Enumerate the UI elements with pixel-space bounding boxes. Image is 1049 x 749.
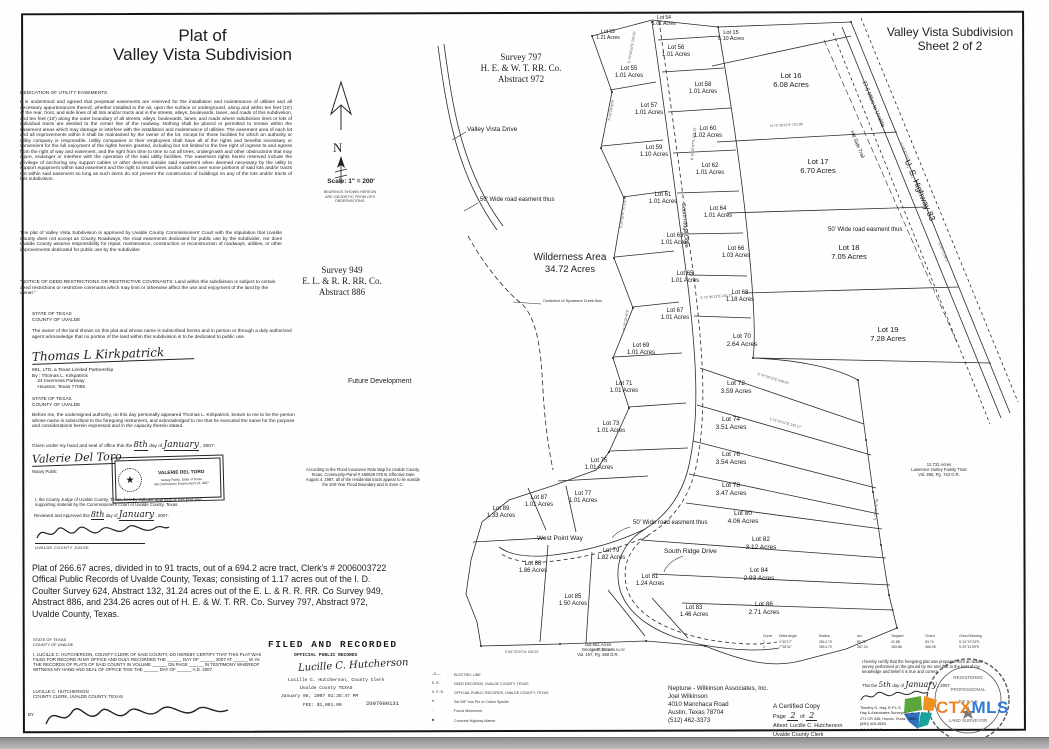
lot-acreage: 3.54 Acres <box>716 459 747 467</box>
lot-label: Lot 641.01 Acres <box>704 206 732 220</box>
road-label: West Point Way <box>537 535 583 542</box>
curve-table-cell: 367.24 <box>857 645 891 651</box>
firm-info-line: (512) 462-3373 <box>668 717 768 725</box>
lot-label: Lot 621.01 Acres <box>696 163 724 177</box>
lot-acreage: 2.71 Acres <box>749 609 780 617</box>
survey-797-line2: H. E. & W. T. RR. Co. <box>473 63 569 74</box>
lot-acreage: 1.10 Acres <box>640 152 668 159</box>
county-of-uvalde-label: COUNTY OF UVALDE <box>33 643 73 648</box>
lot-label: Lot 791.82 Acres <box>597 548 625 562</box>
lot-acreage: 3.59 Acres <box>721 388 752 396</box>
lot-number: Lot 74 <box>716 416 747 424</box>
lot-label: Lot 571.01 Acres <box>635 103 663 117</box>
lot-label: Lot 811.24 Acres <box>636 574 664 588</box>
lot-number: Lot 70 <box>727 333 758 341</box>
lot-label: Lot 176.70 Acres <box>800 158 835 176</box>
clerk-title: COUNTY CLERK, UVALDE COUNTY, TEXAS <box>33 694 123 699</box>
survey-949-line3: Abstract 886 <box>294 287 390 298</box>
lot-number: Lot 86 <box>749 601 780 609</box>
legend-label: ELECTRIC LINE <box>454 673 481 677</box>
given-suffix: , 2007. <box>200 444 215 449</box>
north-arrow-icon: N <box>331 82 351 184</box>
plat-title: Plat of Valley Vista Subdivision <box>100 26 305 64</box>
wilderness-line2: 34.72 Acres <box>518 264 622 276</box>
state-county-block-1: STATE OF TEXAS COUNTY OF UVALDE <box>32 312 80 323</box>
lot-label: Lot 561.01 Acres <box>662 45 690 59</box>
lot-acreage: 1.01 Acres <box>696 170 724 177</box>
lot-acreage: 4.06 Acres <box>728 518 759 526</box>
legend-symbol: D.R. <box>432 682 454 686</box>
owner-company: 691, LTD, a Texas Limited Partnership <box>32 368 113 373</box>
wilderness-area-label: Wilderness Area 34.72 Acres <box>518 252 622 276</box>
surveyor-info-line: Job # 6104-0 <box>860 728 917 733</box>
road-label: Valley Vista Drive <box>467 126 517 133</box>
plat-title-line1: Plat of <box>100 26 305 45</box>
bearings-note: BEARINGS SHOWN HEREON ARE GEODETIC FROM … <box>312 190 388 204</box>
filed-instrument-number: 2007000131 <box>366 700 399 707</box>
lot-number: Lot 66 <box>722 246 750 253</box>
firm-info-line: Austin, Texas 78704 <box>668 709 768 717</box>
lot-number: Lot 55 <box>615 66 643 73</box>
plat-summary-paragraph: Plat of 266.67 acres, divided in to 91 t… <box>32 563 388 620</box>
lot-number: Lot 57 <box>635 103 663 110</box>
lot-label: Lot 155.10 Acres <box>718 30 744 43</box>
lot-acreage: 3.12 Acres <box>746 544 777 552</box>
lot-number: Lot 56 <box>662 45 690 52</box>
page-label: Page <box>773 714 786 720</box>
legend-label: DEED RECORDS, UVALDE COUNTY, TEXAS <box>454 682 529 686</box>
curve-table: CurveDelta AngleRadiusArcTangentChordCho… <box>763 634 1011 651</box>
legend-item: ◦Found Monument <box>432 707 549 716</box>
lot-acreage: 1.01 Acres <box>525 502 553 509</box>
lot-acreage: 1.03 Acres <box>722 253 750 260</box>
lot-acreage: 1.01 Acres <box>615 73 643 80</box>
us-highway-83-road <box>842 22 1010 418</box>
legend-symbol: O.P.R. <box>432 691 454 695</box>
notary-stamp: ★ VALERIE DEL TORO Notary Public, State … <box>114 458 221 501</box>
surveyor-date-prefix: This the <box>862 683 877 688</box>
lot-acreage: 7.05 Acres <box>831 253 866 262</box>
notary-given-line: Given under my hand and seal of office t… <box>32 440 215 450</box>
given-month-handwritten: January <box>164 440 199 451</box>
lot-label: Lot 531.21 Acres <box>596 30 620 42</box>
survey-797-line3: Abstract 972 <box>473 74 569 85</box>
clerk-by-label: BY <box>28 712 34 717</box>
lot-number: Lot 85 <box>559 594 587 601</box>
surveyor-date-line: This the 5th day of January , 2007. <box>862 680 951 689</box>
surveyor-firm-block: Neptune - Wilkinson Associates, Inc.Joel… <box>668 685 768 725</box>
lot-label: Lot 651.01 Acres <box>671 271 699 285</box>
hurley-tract-label: 12.731 Acres Lawrence Hurley Family Trus… <box>893 462 985 478</box>
lot-acreage: 1.01 Acres <box>649 199 677 206</box>
lot-number: Lot 81 <box>636 574 664 581</box>
lot-number: Lot 75 <box>585 458 613 465</box>
lot-acreage: 1.18 Acres <box>726 297 754 304</box>
legend-item: ●Set 5/8" Iron Pin or Cotton Spindle <box>432 698 549 707</box>
curve-table-cell: 366.98 <box>925 645 959 651</box>
lot-number: Lot 73 <box>597 421 625 428</box>
deed-restrictions-notice: "NOTICE OF DEED RESTRICTIONS OR RESTRICT… <box>20 280 278 297</box>
survey-797-block: Survey 797 H. E. & W. T. RR. Co. Abstrac… <box>473 52 569 85</box>
reviewed-suffix: , 2007. <box>155 513 168 518</box>
reviewed-month-handwritten: January <box>119 510 154 521</box>
lot-acreage: 1.01 Acres <box>627 350 655 357</box>
lot-label: Lot 541.01 Acres <box>652 16 676 28</box>
lot-number: Lot 67 <box>661 308 689 315</box>
bearing-distance-label: N 86°36'53"E 184.59' <box>592 648 625 652</box>
map-legend: —E——ELECTRIC LINED.R.DEED RECORDS, UVALD… <box>432 670 549 725</box>
legend-item: ■Concrete Highway Marker <box>432 716 549 725</box>
lot-label: Lot 166.08 Acres <box>773 72 808 90</box>
firm-info-line: Joel Wilkinson <box>668 693 768 701</box>
lot-label: Lot 591.10 Acres <box>640 145 668 159</box>
seal-word-registered: REGISTERED <box>953 675 983 680</box>
ctx-logo-text: CTX <box>936 698 972 717</box>
lot-acreage: 7.28 Acres <box>870 335 905 344</box>
survey-797-line1: Survey 797 <box>473 52 569 63</box>
surveyor-certification-body: I hereby certify that the foregoing plat… <box>862 659 992 675</box>
lot-acreage: 1.33 Acres <box>487 513 515 520</box>
lot-acreage: 3.47 Acres <box>716 490 747 498</box>
lot-label: Lot 723.59 Acres <box>721 380 752 395</box>
curve-table-cell: 2814.79 <box>819 645 857 651</box>
lot-label: Lot 611.01 Acres <box>649 192 677 206</box>
county-of-uvalde-label: COUNTY OF UVALDE <box>32 403 80 409</box>
lot-acreage: 6.70 Acres <box>800 167 835 176</box>
sheet-title-line1: Valley Vista Subdivision <box>880 25 1020 39</box>
lot-label: Lot 881.86 Acres <box>519 561 547 575</box>
filed-clerk-line: Lucille C. Hutcherson, County Clerk <box>288 678 385 683</box>
certified-copy-line1: A Certified Copy <box>773 702 842 711</box>
lot-number: Lot 62 <box>696 163 724 170</box>
filed-datetime: January 08, 2007 01:35:47 PM <box>281 694 358 699</box>
lot-label: Lot 671.01 Acres <box>661 308 689 322</box>
official-public-records-label: OFFICIAL PUBLIC RECORDS <box>294 653 357 658</box>
lot-label: Lot 187.05 Acres <box>831 244 866 262</box>
lot-number: Lot 88 <box>519 561 547 568</box>
legend-label: Found Monument <box>454 709 482 713</box>
scale-label: Scale: 1" = 200' <box>316 178 386 185</box>
owner-by-line: By : Thomas L. Kirkpatrick <box>32 374 88 379</box>
lot-acreage: 1.01 Acres <box>671 278 699 285</box>
lot-number: Lot 69 <box>627 343 655 350</box>
lot-label: Lot 771.01 Acres <box>569 491 597 505</box>
owner-acknowledgement-body: The owner of the land shown on this plat… <box>32 329 294 340</box>
flood-insurance-note: According to the Flood Insurance Rate Ma… <box>297 467 429 487</box>
curve-table-cell: 7°28'31" <box>779 645 819 651</box>
curve-table-cell: S 20°11'59"E <box>959 645 1011 651</box>
lot-number: Lot 79 <box>597 548 625 555</box>
lot-acreage: 1.01 Acres <box>635 110 663 117</box>
lot-label: Lot 823.12 Acres <box>746 536 777 551</box>
lot-label: Lot 842.93 Acres <box>744 567 775 582</box>
sheet-title-line2: Sheet 2 of 2 <box>880 39 1020 53</box>
lot-label: Lot 831.46 Acres <box>680 605 708 619</box>
notary-acknowledgement-body: Before me, the undersigned authority, on… <box>32 413 300 430</box>
lot-number: Lot 78 <box>716 482 747 490</box>
lot-label: Lot 804.06 Acres <box>728 510 759 525</box>
county-judge-approval-body: I, the County Judge of Uvalde County, Te… <box>35 497 220 507</box>
county-clerk-signature <box>46 707 228 724</box>
lot-number: Lot 61 <box>649 192 677 199</box>
legend-item: O.P.R.OFFICIAL PUBLIC RECORDS, UVALDE CO… <box>432 688 549 697</box>
reviewed-mid: day of <box>106 513 118 518</box>
lot-label: Lot 731.01 Acres <box>597 421 625 435</box>
survey-949-block: Survey 949 E. L. & R. R. RR. Co. Abstrac… <box>294 265 390 298</box>
page-num-handwritten: 2 <box>787 711 798 721</box>
road-label: 50' Wide road easment thus <box>828 227 903 233</box>
lot-acreage: 1.01 Acres <box>662 52 690 59</box>
lot-acreage: 1.86 Acres <box>519 568 547 575</box>
certified-attest-line: Attest: Lucille C. Hutcherson <box>773 722 842 731</box>
lot-number: Lot 71 <box>610 381 638 388</box>
lot-label: Lot 851.50 Acres <box>559 594 587 608</box>
road-label: South Ridge Drive <box>664 548 717 555</box>
lot-acreage: 1.01 Acres <box>704 213 732 220</box>
lot-label: Lot 891.33 Acres <box>487 506 515 520</box>
owner-address2: Houston, Texas 77055 <box>32 385 85 390</box>
legend-symbol: ◦ <box>432 709 454 713</box>
given-prefix: Given under my hand and seal of office t… <box>32 444 132 449</box>
ctxmls-logo: CTXMLS <box>936 698 1009 718</box>
certified-copy-block: A Certified Copy Page 2 of 2 Attest: Luc… <box>773 702 842 740</box>
surveyor-date-mid: day of <box>892 683 904 688</box>
lot-label: Lot 871.01 Acres <box>525 495 553 509</box>
page-total-handwritten: 2 <box>806 711 817 721</box>
surveyor-date-suffix: , 2007. <box>938 683 951 688</box>
dedication-heading: DEDICATION OF UTILITY EASEMENTS <box>20 91 107 96</box>
lot-acreage: 2.64 Acres <box>727 341 758 349</box>
reviewed-prefix: Reviewed and Approved this <box>34 513 90 518</box>
lot-column-east-edge <box>718 27 754 358</box>
lot-label: Lot 702.64 Acres <box>727 333 758 348</box>
county-judge-signature <box>37 526 169 538</box>
mls-logo-text: MLS <box>972 698 1009 717</box>
county-approval-body: The plat of Valley Vista Subdivision is … <box>20 231 282 253</box>
scanned-plat-document: N REGISTERED PROFESSIONAL T E X A S LAND… <box>0 0 1049 749</box>
subdivision-east-boundary <box>753 358 897 628</box>
seal-word-land-surveyor: LAND SURVEYOR <box>949 718 988 723</box>
county-of-uvalde-label: COUNTY OF UVALDE <box>32 318 80 324</box>
lot-number: Lot 58 <box>689 82 717 89</box>
notary-stamp-line3: My Commission Expires April 13, 2007 <box>145 481 218 487</box>
legend-item: —E——ELECTRIC LINE <box>432 670 549 679</box>
curve-table-cell: 183.88 <box>891 645 925 651</box>
lot-number: Lot 83 <box>680 605 708 612</box>
surveyor-info-block: Timothy G. Hay, R.P.L.S.Hay & Associates… <box>860 706 917 733</box>
lot-number: Lot 87 <box>525 495 553 502</box>
legend-symbol: ■ <box>432 719 454 723</box>
future-development-label: Future Development <box>348 378 411 385</box>
lot-number: Lot 80 <box>728 510 759 518</box>
lot-label: Lot 601.02 Acres <box>694 126 722 140</box>
lot-acreage: 1.01 Acres <box>569 498 597 505</box>
lot-label: Lot 711.01 Acres <box>610 381 638 395</box>
lot-number: Lot 76 <box>716 451 747 459</box>
of-label: of <box>800 714 805 720</box>
firm-info-line: Neptune - Wilkinson Associates, Inc. <box>668 685 768 693</box>
lot-number: Lot 72 <box>721 380 752 388</box>
filed-county-line: Uvalde County TEXAS <box>300 686 352 691</box>
firm-info-line: 4010 Manchaca Road <box>668 701 768 709</box>
lot-acreage: 1.01 Acres <box>661 315 689 322</box>
legend-label: Concrete Highway Marker <box>454 719 496 723</box>
state-county-block-3: STATE OF TEXAS COUNTY OF UVALDE <box>33 638 73 647</box>
dedication-body: It is understood and agreed that perpetu… <box>20 100 292 183</box>
lot-label: Lot 197.28 Acres <box>870 326 905 344</box>
filed-recorded-title: FILED AND RECORDED <box>268 639 398 650</box>
seal-word-professional: PROFESSIONAL <box>950 687 986 692</box>
clerk-name-block: LUCILLE C. HUTCHERSON COUNTY CLERK, UVAL… <box>33 689 123 699</box>
scanner-edge-band <box>0 737 1049 749</box>
survey-949-line2: E. L. & R. R. RR. Co. <box>294 276 390 287</box>
lot-number: Lot 60 <box>694 126 722 133</box>
given-mid: day of <box>149 444 162 449</box>
survey-949-line1: Survey 949 <box>294 265 390 276</box>
wilderness-line1: Wilderness Area <box>518 252 622 264</box>
plat-title-line2: Valley Vista Subdivision <box>100 45 305 64</box>
sheet-title: Valley Vista Subdivision Sheet 2 of 2 <box>880 25 1020 53</box>
lot-label: Lot 862.71 Acres <box>749 601 780 616</box>
state-county-block-2: STATE OF TEXAS COUNTY OF UVALDE <box>32 397 80 408</box>
lot-acreage: 1.24 Acres <box>636 581 664 588</box>
legend-symbol: —E—— <box>432 673 454 677</box>
owner-company-block: 691, LTD, a Texas Limited PartnershipBy … <box>32 368 113 390</box>
lot-acreage: 1.82 Acres <box>597 555 625 562</box>
lot-acreage: 1.01 Acres <box>597 428 625 435</box>
hill-side-trail-road <box>824 40 958 345</box>
notary-seal-star-icon: ★ <box>118 468 143 493</box>
legend-symbol: ● <box>432 700 454 704</box>
lot-acreage: 1.02 Acres <box>694 133 722 140</box>
legend-label: Set 5/8" Iron Pin or Cotton Spindle <box>454 700 509 704</box>
reviewed-approved-line: Reviewed and Approved this 8th day of Ja… <box>34 510 169 520</box>
uvalde-county-judge-label: UVALDE COUNTY JUDGE <box>35 543 145 550</box>
curve-table-row: 27°28'31"2814.79367.24183.88366.98S 20°1… <box>763 645 1011 651</box>
lot-acreage: 1.01 Acres <box>610 388 638 395</box>
road-label: 50' Wide road easment thus <box>633 520 708 526</box>
lot-label: Lot 691.01 Acres <box>627 343 655 357</box>
lot-number: Lot 89 <box>487 506 515 513</box>
lot-acreage: 1.21 Acres <box>596 36 620 42</box>
filed-fee: FEE: $1,091.00 <box>303 703 342 708</box>
lot-number: Lot 77 <box>569 491 597 498</box>
notary-public-label: Notary Public <box>32 469 57 474</box>
lot-label: Lot 743.51 Acres <box>716 416 747 431</box>
curve-table-cell: 2 <box>763 645 779 651</box>
lot-number: Lot 82 <box>746 536 777 544</box>
lot-acreage: 1.01 Acres <box>585 465 613 472</box>
lot-acreage: 1.01 Acres <box>652 22 676 28</box>
legend-item: D.R.DEED RECORDS, UVALDE COUNTY, TEXAS <box>432 679 549 688</box>
lot-number: Lot 64 <box>704 206 732 213</box>
lot-acreage: 1.01 Acres <box>689 89 717 96</box>
clerk-certificate-body: I, LUCILLE C. HUTCHERSON, COUNTY CLERK O… <box>33 652 265 672</box>
lot-label: Lot 581.01 Acres <box>689 82 717 96</box>
lot-acreage: 1.46 Acres <box>680 612 708 619</box>
lot-acreage: 6.08 Acres <box>773 81 808 90</box>
lot-acreage: 2.93 Acres <box>744 575 775 583</box>
lot-acreage: 3.51 Acres <box>716 424 747 432</box>
certified-copy-page-line: Page 2 of 2 <box>773 711 842 722</box>
lot-label: Lot 751.01 Acres <box>585 458 613 472</box>
surveyor-date-month-handwritten: January <box>905 680 936 689</box>
lot-label: Lot 661.03 Acres <box>722 246 750 260</box>
lot-number: Lot 59 <box>640 145 668 152</box>
road-label: 50' Wide road easment thus <box>480 197 555 203</box>
lot-number: Lot 84 <box>744 567 775 575</box>
surveyor-date-day-handwritten: 5th <box>879 680 892 689</box>
lot-acreage: 5.10 Acres <box>718 36 744 42</box>
lot-label: Lot 783.47 Acres <box>716 482 747 497</box>
north-letter: N <box>333 140 343 155</box>
legend-label: OFFICIAL PUBLIC RECORDS, UVALDE COUNTY, … <box>454 691 549 695</box>
owner-address1: 24 Inverness Parkway <box>32 379 85 384</box>
lot-label: Lot 763.54 Acres <box>716 451 747 466</box>
reviewed-day-handwritten: 8th <box>91 510 104 520</box>
lot-number: Lot 65 <box>671 271 699 278</box>
creek-centerline-label: Centerline of Sycamore Creek thus <box>543 299 602 303</box>
lot-acreage: 1.50 Acres <box>559 601 587 608</box>
bearing-distance-label: S 86°32'53"W 165.25' <box>505 650 539 654</box>
lot-label: Lot 551.01 Acres <box>615 66 643 80</box>
